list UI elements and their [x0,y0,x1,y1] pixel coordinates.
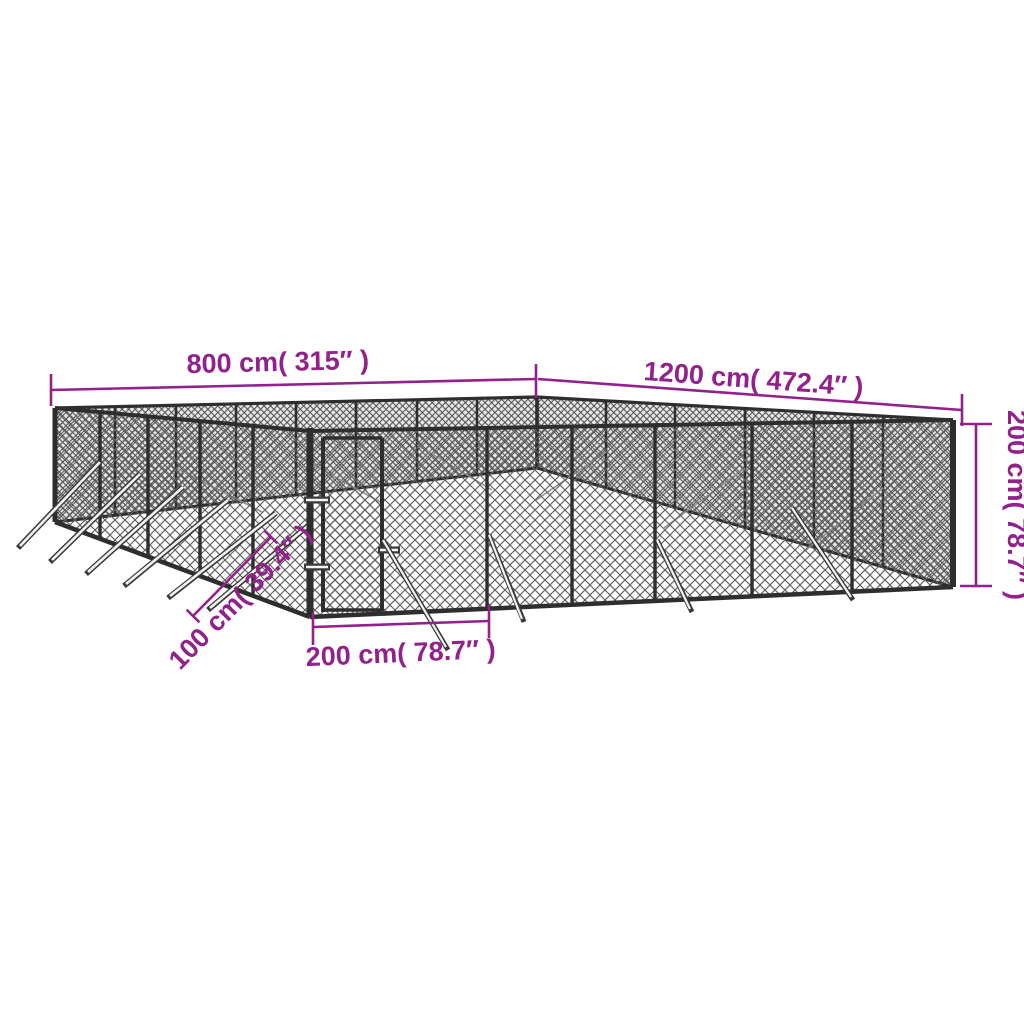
dim-height-label: 200 cm( 78.7″ ) [1002,410,1024,600]
dim-back-left-width-label: 800 cm( 315″ ) [186,345,369,379]
dim-height: 200 cm( 78.7″ ) [960,410,1024,600]
dim-back-left-width: 800 cm( 315″ ) [51,345,536,406]
kennel-dimension-diagram: 800 cm( 315″ ) 1200 cm( 472.4″ ) 200 cm(… [0,0,1024,1024]
front-right-wall [304,420,953,650]
dim-gate-width-label: 200 cm( 78.7″ ) [305,634,496,672]
gate-mesh [325,440,380,609]
front-right-wall-mesh [310,420,953,617]
